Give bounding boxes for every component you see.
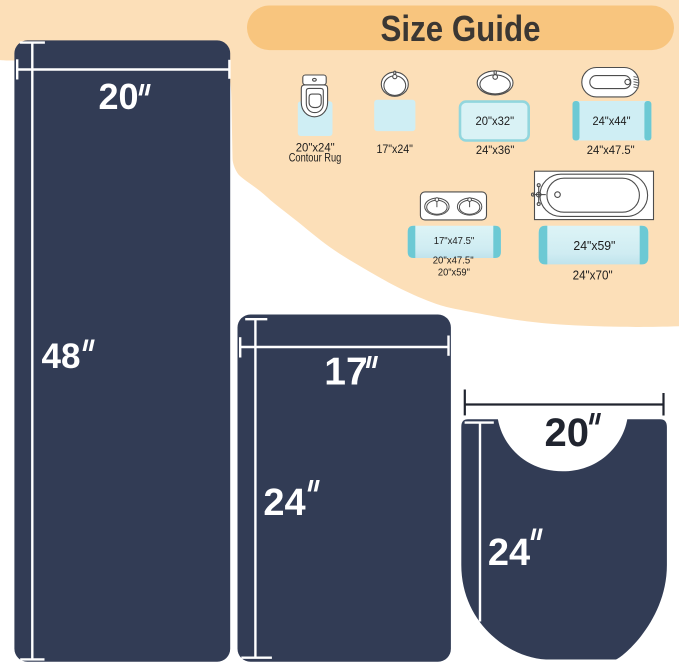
svg-text:24: 24 bbox=[263, 482, 305, 524]
svg-text:17: 17 bbox=[324, 350, 367, 393]
svg-text:20"x47.5": 20"x47.5" bbox=[433, 256, 474, 267]
svg-text:48: 48 bbox=[42, 337, 81, 376]
svg-text:24"x70": 24"x70" bbox=[573, 268, 613, 283]
svg-text:24"x36": 24"x36" bbox=[476, 143, 515, 157]
svg-text:20: 20 bbox=[98, 76, 138, 117]
svg-text:20"x59": 20"x59" bbox=[438, 268, 470, 279]
svg-text:24: 24 bbox=[488, 532, 530, 574]
svg-text:17"x24": 17"x24" bbox=[376, 144, 413, 156]
svg-text:Size Guide: Size Guide bbox=[381, 8, 541, 49]
svg-text:Contour Rug: Contour Rug bbox=[289, 152, 342, 164]
svg-text:24"x59": 24"x59" bbox=[573, 238, 615, 253]
svg-text:24"x44": 24"x44" bbox=[593, 114, 631, 128]
svg-text:17"x47.5": 17"x47.5" bbox=[434, 236, 475, 247]
svg-text:20: 20 bbox=[545, 411, 590, 455]
svg-text:20"x32": 20"x32" bbox=[476, 114, 515, 128]
svg-text:24"x47.5": 24"x47.5" bbox=[587, 143, 635, 157]
